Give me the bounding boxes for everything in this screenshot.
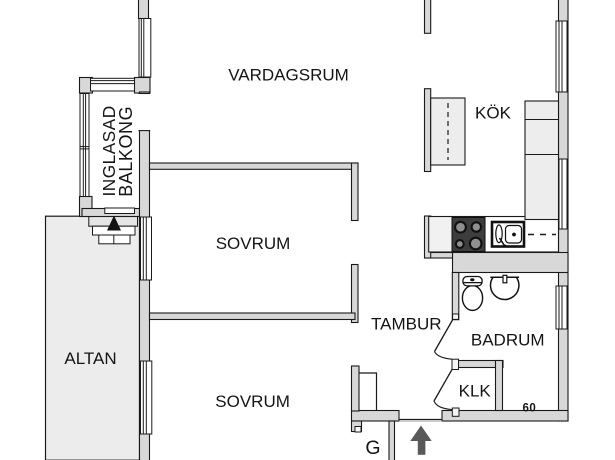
svg-text:BADRUM: BADRUM	[471, 330, 545, 349]
svg-text:SOVRUM: SOVRUM	[216, 234, 291, 253]
svg-text:TAMBUR: TAMBUR	[371, 314, 442, 333]
svg-text:ALTAN: ALTAN	[64, 349, 116, 368]
svg-text:60: 60	[523, 402, 537, 414]
svg-text:VARDAGSRUM: VARDAGSRUM	[228, 65, 349, 84]
svg-text:G: G	[365, 437, 380, 459]
svg-text:SOVRUM: SOVRUM	[215, 392, 290, 411]
svg-text:KÖK: KÖK	[475, 104, 512, 123]
svg-text:BALKONG: BALKONG	[116, 106, 136, 197]
svg-text:KLK: KLK	[459, 382, 492, 401]
